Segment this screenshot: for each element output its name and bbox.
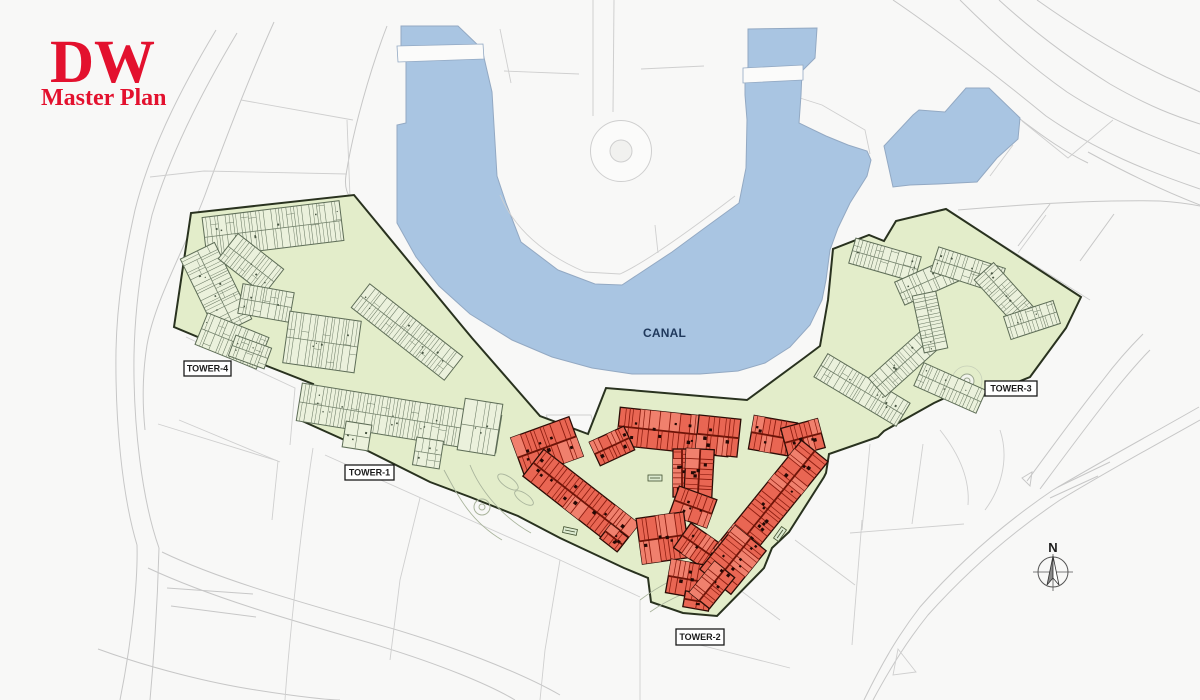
svg-text:TOWER-1: TOWER-1	[349, 468, 390, 478]
svg-text:TOWER-2: TOWER-2	[679, 632, 720, 642]
svg-text:TOWER-3: TOWER-3	[990, 384, 1031, 394]
svg-text:CANAL: CANAL	[643, 326, 686, 340]
svg-text:Master Plan: Master Plan	[41, 85, 167, 111]
svg-text:TOWER-4: TOWER-4	[187, 364, 228, 374]
svg-text:N: N	[1048, 540, 1057, 555]
